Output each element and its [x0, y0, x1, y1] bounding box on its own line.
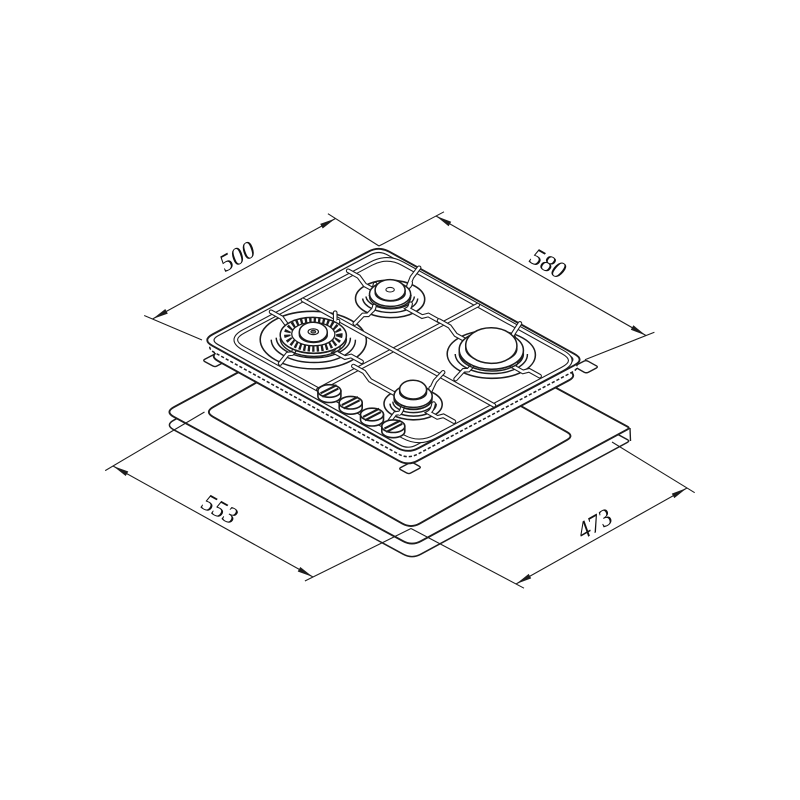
svg-text:553: 553	[197, 489, 242, 530]
svg-text:580: 580	[525, 243, 570, 285]
svg-text:500: 500	[215, 236, 260, 277]
svg-text:473: 473	[572, 503, 617, 545]
